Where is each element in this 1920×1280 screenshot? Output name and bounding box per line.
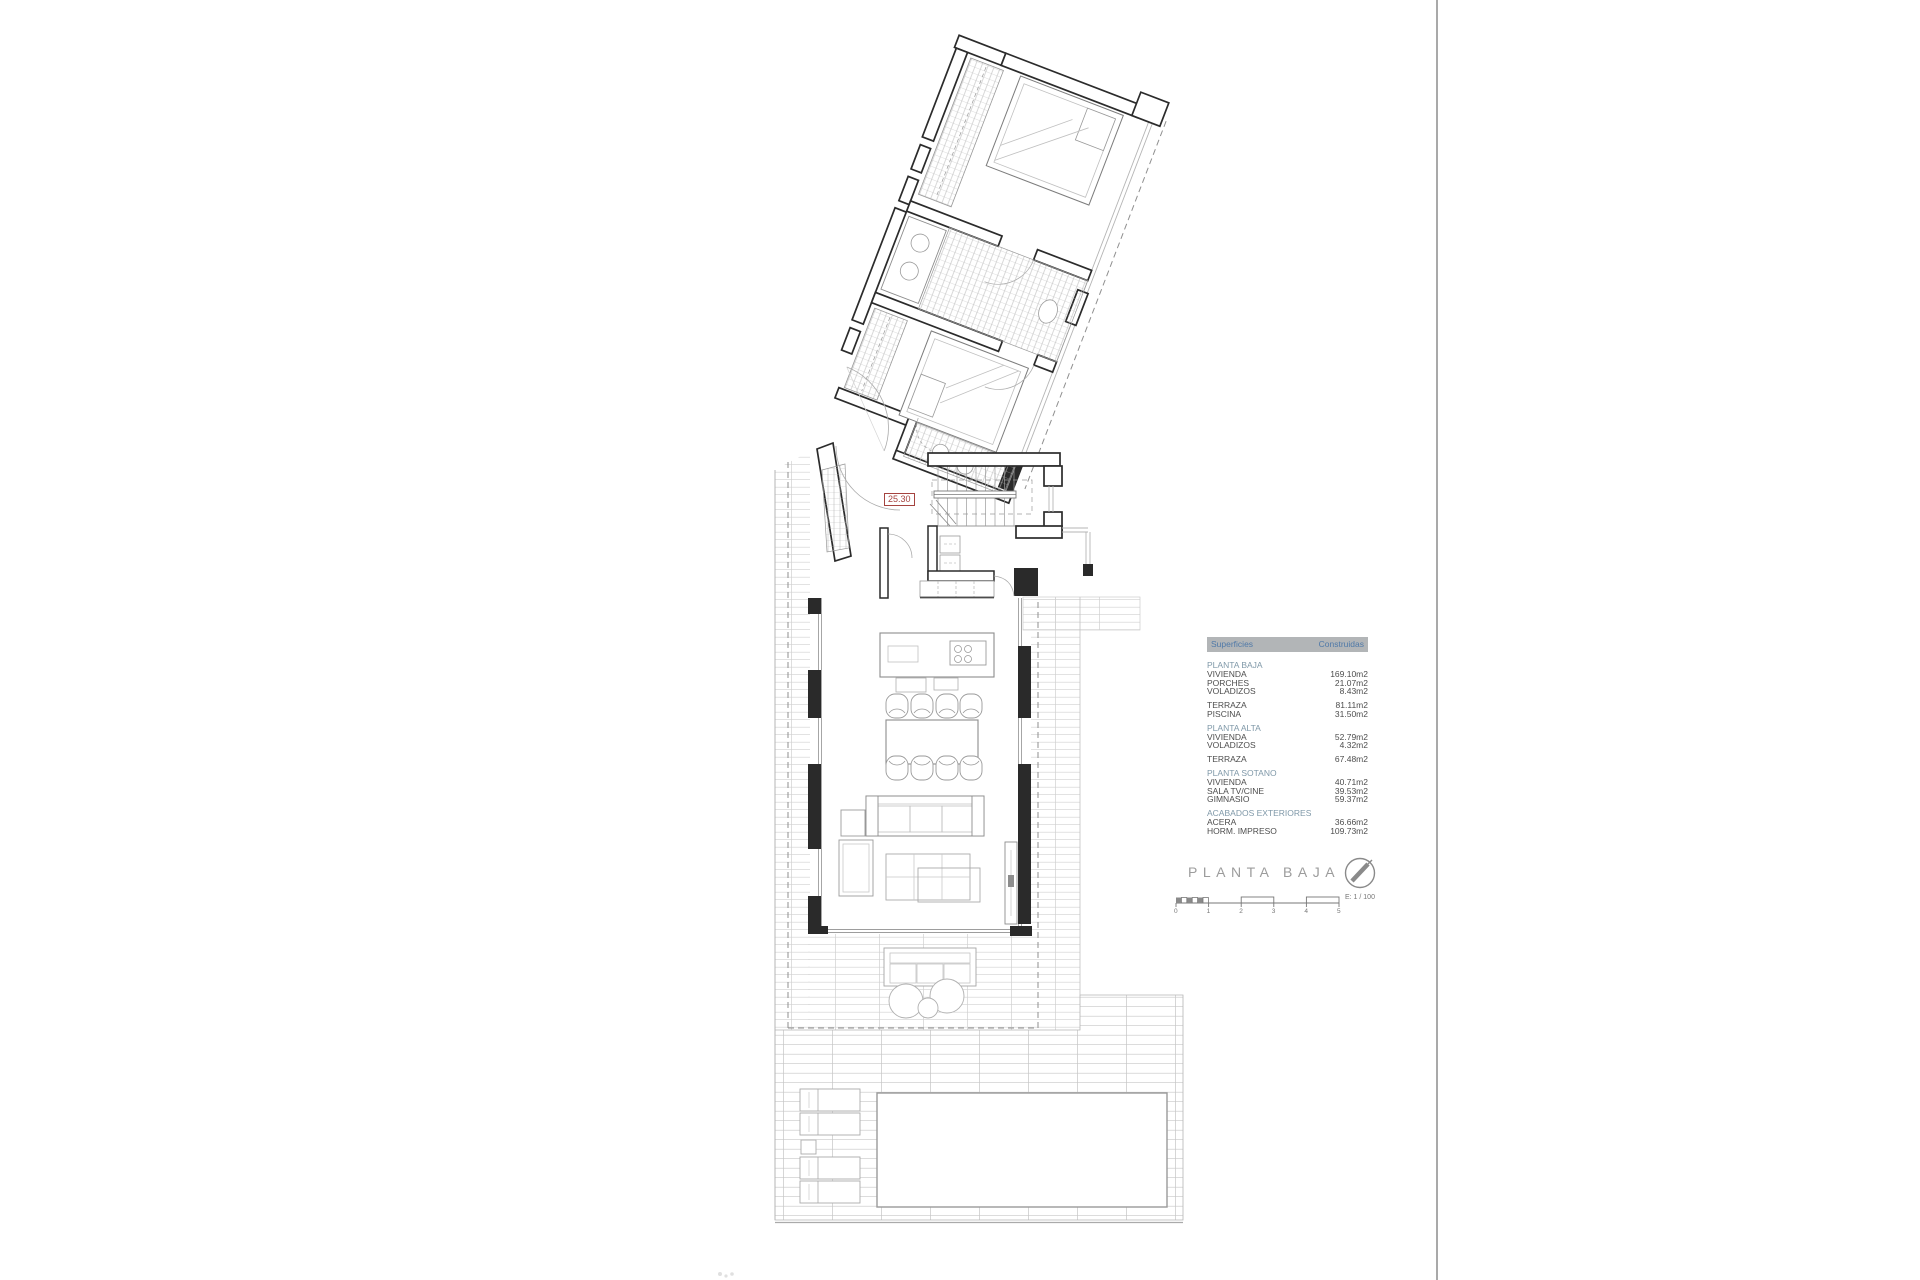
area-row-label: PISCINA xyxy=(1207,710,1241,719)
scale-tick-label: 0 xyxy=(1174,908,1178,915)
scale-tick-label: 4 xyxy=(1304,908,1308,915)
bottom-faint-mark xyxy=(718,1272,734,1278)
scale-bar xyxy=(1176,897,1339,907)
scale-tick-label: 1 xyxy=(1207,908,1211,915)
area-row-label: VOLADIZOS xyxy=(1207,687,1256,696)
dining-set xyxy=(886,694,982,780)
wall-pillar xyxy=(1014,568,1038,596)
area-row-value: 31.50m2 xyxy=(1335,710,1368,719)
bedroom-wing xyxy=(809,24,1173,507)
area-row: HORM. IMPRESO109.73m2 xyxy=(1207,827,1368,836)
scale-tick-label: 3 xyxy=(1272,908,1276,915)
page-separator-line xyxy=(1436,0,1438,1280)
hall-wc-kitchen xyxy=(880,526,1038,598)
area-row-label: TERRAZA xyxy=(1207,755,1247,764)
north-arrow-icon xyxy=(1346,859,1375,888)
area-row-value: 8.43m2 xyxy=(1340,687,1368,696)
areas-table-header-col1: Superficies xyxy=(1211,640,1253,649)
floor-plan-sheet: 25.30 Superficies Construidas PLANTA BAJ… xyxy=(0,0,1920,1280)
area-row-label: HORM. IMPRESO xyxy=(1207,827,1277,836)
areas-table-header-col2: Construidas xyxy=(1319,640,1364,649)
dimension-label: 25.30 xyxy=(884,493,915,506)
area-row-value: 4.32m2 xyxy=(1340,741,1368,750)
area-row: VOLADIZOS4.32m2 xyxy=(1207,741,1368,750)
areas-table-body: PLANTA BAJAVIVIENDA169.10m2PORCHES21.07m… xyxy=(1207,652,1368,836)
scale-tick-label: 5 xyxy=(1337,908,1341,915)
areas-table: Superficies Construidas PLANTA BAJAVIVIE… xyxy=(1207,637,1368,836)
area-row: GIMNASIO59.37m2 xyxy=(1207,795,1368,804)
armchair xyxy=(841,810,865,836)
side-table xyxy=(801,1140,816,1154)
area-row-value: 59.37m2 xyxy=(1335,795,1368,804)
chaise xyxy=(839,840,873,896)
area-row: VOLADIZOS8.43m2 xyxy=(1207,687,1368,696)
pool xyxy=(877,1093,1167,1207)
area-row-value: 67.48m2 xyxy=(1335,755,1368,764)
stair-annex-wall xyxy=(1062,528,1090,570)
area-row-value: 109.73m2 xyxy=(1330,827,1368,836)
living-furniture xyxy=(839,796,1017,924)
floor-plan-drawing xyxy=(0,0,1920,1280)
area-row: PISCINA31.50m2 xyxy=(1207,710,1368,719)
area-row: TERRAZA67.48m2 xyxy=(1207,755,1368,764)
scale-ratio-label: E: 1 / 100 xyxy=(1345,894,1375,901)
plan-title: PLANTA BAJA xyxy=(1188,864,1340,880)
scale-tick-label: 2 xyxy=(1239,908,1243,915)
kitchen-island xyxy=(880,633,994,692)
areas-table-header: Superficies Construidas xyxy=(1207,637,1368,652)
area-row-label: VOLADIZOS xyxy=(1207,741,1256,750)
outdoor-sofa xyxy=(884,948,976,986)
area-row-label: GIMNASIO xyxy=(1207,795,1250,804)
sofa xyxy=(866,796,984,836)
